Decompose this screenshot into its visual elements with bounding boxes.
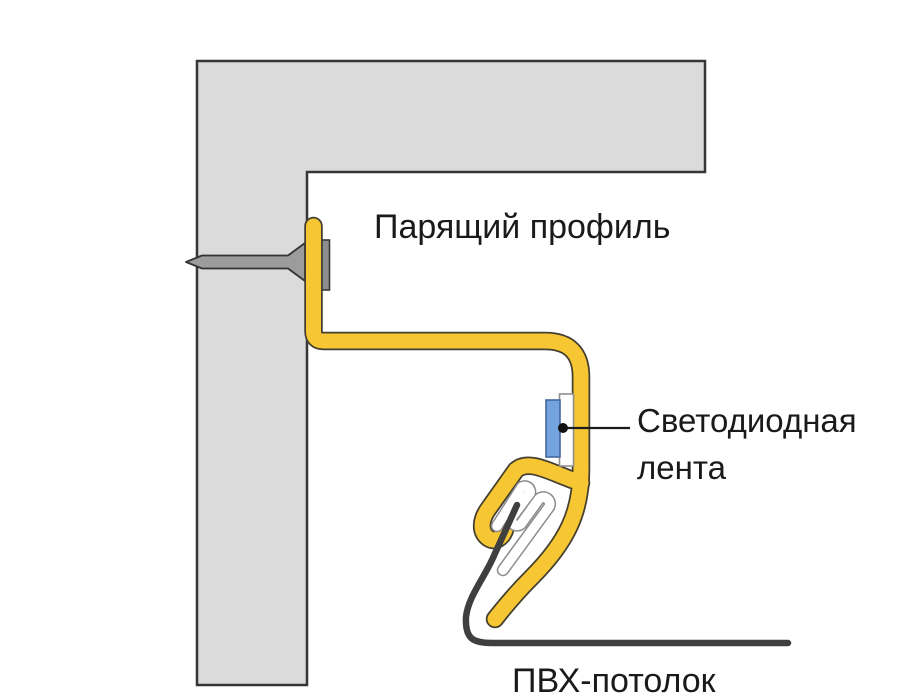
label-led-strip-line2: лента	[637, 449, 727, 486]
profile-main	[314, 226, 582, 619]
led-leader-dot	[558, 423, 568, 433]
wall-ceiling-shape	[197, 61, 705, 685]
diagram-canvas: Парящий профиль Светодиодная лента ПВХ-п…	[0, 0, 897, 698]
floating-profile	[314, 226, 582, 619]
label-pvc-ceiling: ПВХ-потолок	[512, 662, 717, 698]
label-led-strip-line1: Светодиодная	[637, 402, 857, 439]
led-strip	[546, 400, 560, 457]
label-floating-profile: Парящий профиль	[374, 208, 670, 246]
ceiling-profile-diagram: Парящий профиль Светодиодная лента ПВХ-п…	[0, 0, 897, 698]
